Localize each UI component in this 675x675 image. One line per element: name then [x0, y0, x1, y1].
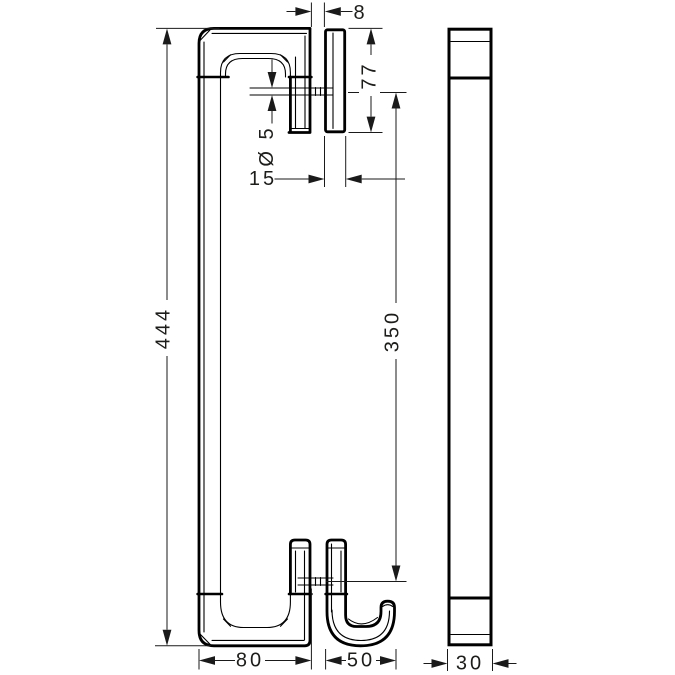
dim-pin-spacing: 350	[326, 93, 407, 582]
dim-glass-gap: 8	[287, 2, 368, 27]
dim-hook-depth: 50	[326, 649, 396, 672]
technical-drawing-canvas: 444 350 77	[0, 0, 675, 675]
arrowhead-right	[295, 656, 311, 665]
dim-body-depth-label: 80	[236, 650, 264, 672]
dimensions: 444 350 77	[153, 2, 517, 675]
dim-clamp-height-label: 77	[359, 61, 381, 89]
rail-channel-ceiling-offset	[226, 59, 286, 78]
dim-body-depth: 80	[199, 589, 311, 672]
dim-overall-height: 444	[153, 28, 220, 645]
hook-scoop-line	[349, 618, 378, 624]
arrowhead-down	[367, 117, 376, 133]
corner-tick-floor-left	[224, 619, 231, 626]
arrowhead-up	[268, 95, 277, 111]
dim-profile-width: 30	[424, 649, 517, 675]
dim-hook-depth-label: 50	[347, 650, 375, 672]
rail-channel-ceiling	[221, 54, 291, 78]
dim-profile-width-label: 30	[456, 653, 484, 675]
arrowhead-down	[163, 630, 172, 646]
arrowhead-right	[295, 7, 311, 16]
arrowhead-right	[432, 659, 448, 668]
arrowhead-down	[268, 72, 277, 88]
corner-tick-floor-right	[281, 619, 288, 626]
hook-tip-inner-line	[383, 605, 393, 607]
clamp-plate-outline	[326, 30, 345, 132]
arrowhead-left	[325, 7, 341, 16]
arrowhead-up	[392, 93, 401, 109]
dim-clamp-depth-label: 15	[249, 168, 277, 190]
dim-pin-diameter: Ø 5	[256, 60, 278, 167]
dim-pin-diameter-label: Ø 5	[256, 125, 278, 166]
arrowhead-right	[309, 175, 325, 184]
arrowhead-left	[493, 659, 509, 668]
front-view-outline	[449, 29, 491, 645]
arrowhead-left	[346, 175, 362, 184]
arrowhead-left	[199, 656, 215, 665]
dim-glass-gap-label: 8	[353, 2, 367, 24]
dimension-drawing: 444 350 77	[0, 0, 675, 675]
rail-profile-outline	[199, 28, 310, 645]
front-view	[448, 29, 493, 645]
dim-clamp-height: 77	[349, 28, 383, 132]
dim-pin-spacing-label: 350	[382, 310, 404, 352]
arrowhead-down	[392, 566, 401, 582]
arrowhead-right	[380, 656, 396, 665]
side-view	[198, 28, 395, 645]
arrowhead-up	[367, 28, 376, 44]
arrowhead-up	[163, 29, 172, 45]
dim-overall-height-label: 444	[153, 307, 175, 349]
arrowhead-left	[326, 656, 342, 665]
